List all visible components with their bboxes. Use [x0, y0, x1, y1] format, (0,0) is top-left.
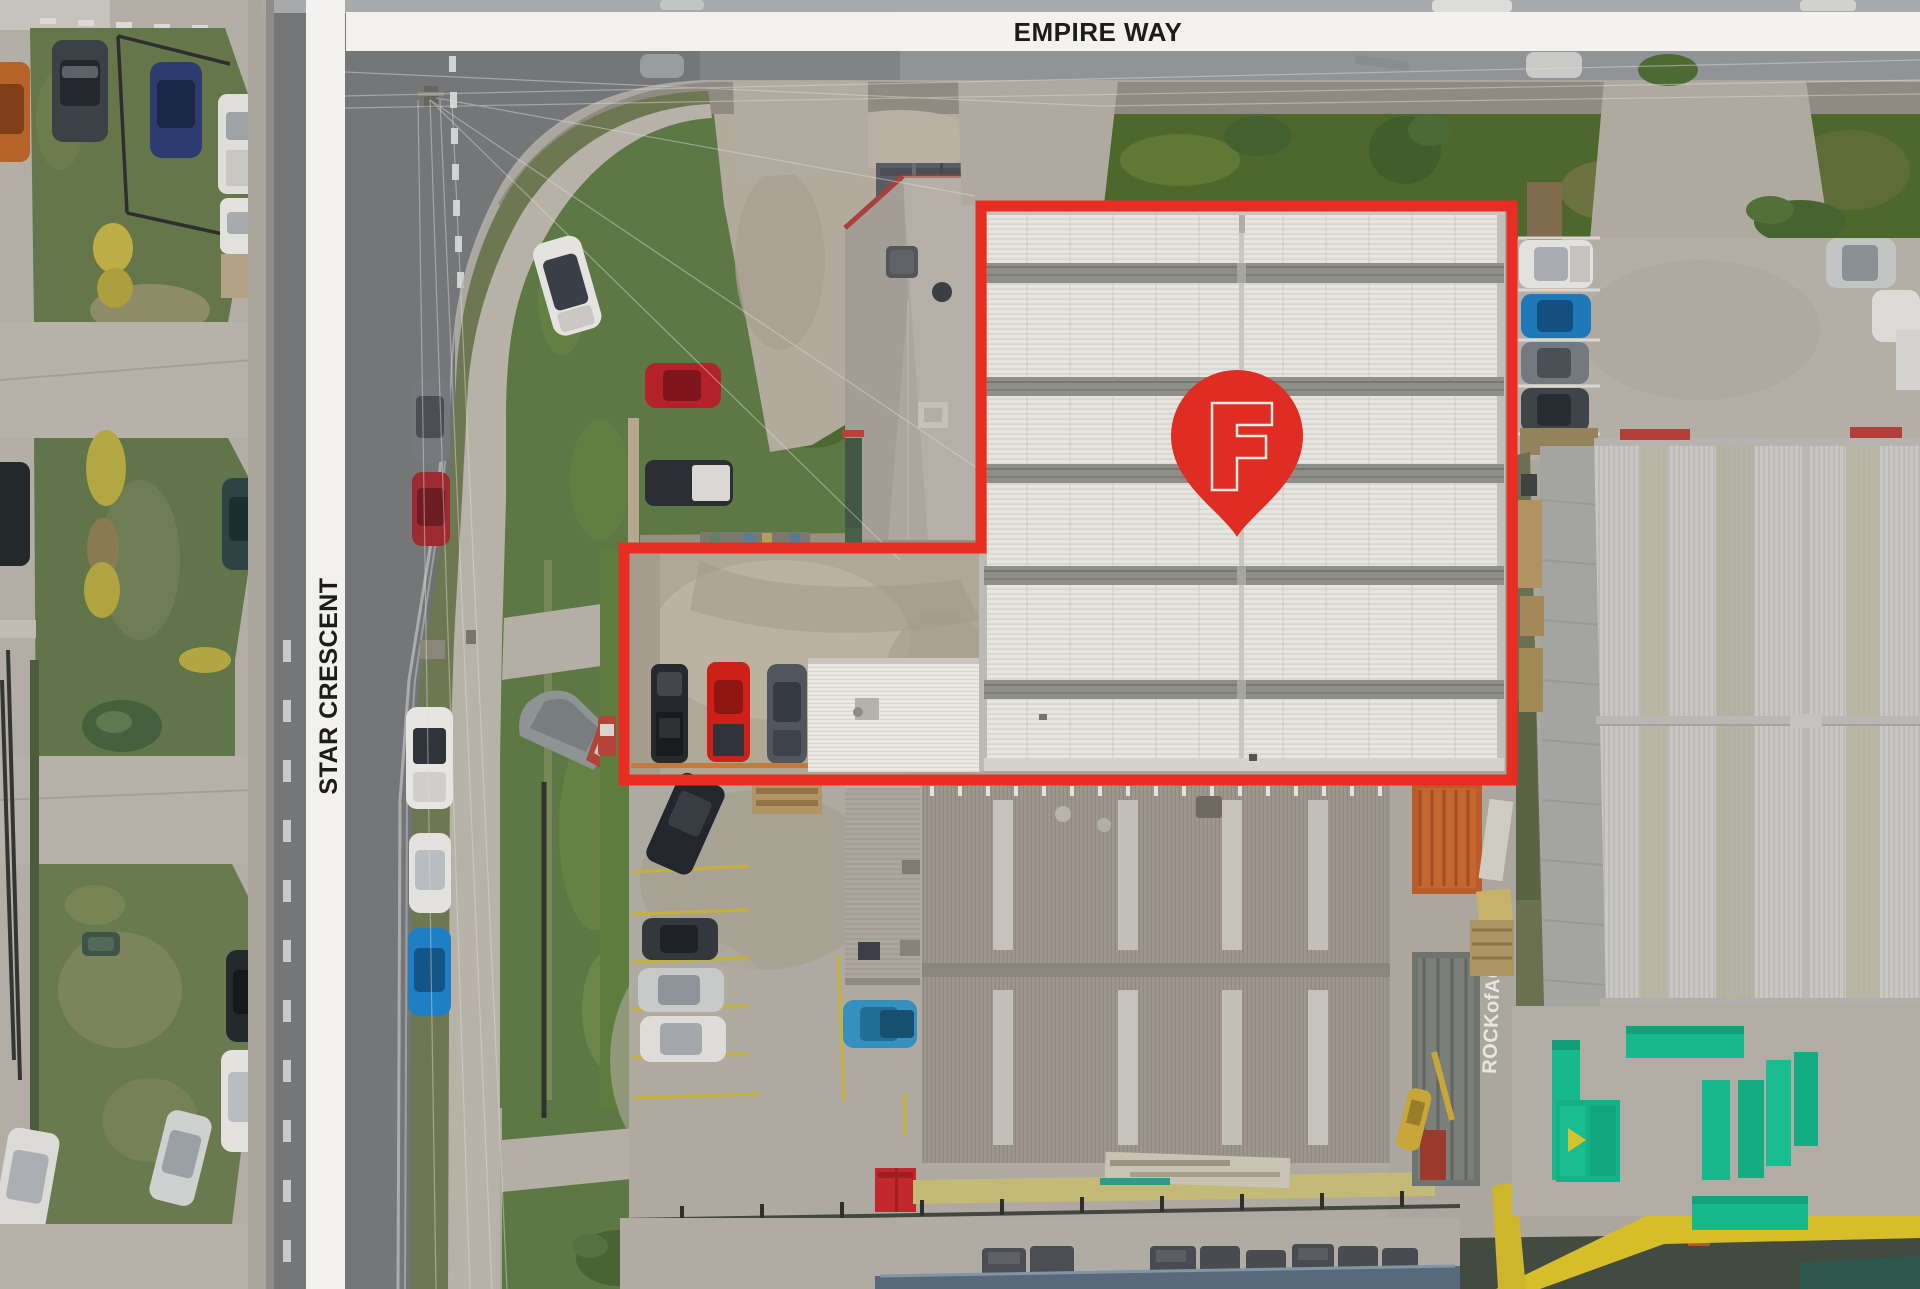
svg-text:STAR CRESCENT: STAR CRESCENT — [315, 577, 343, 794]
svg-text:EMPIRE WAY: EMPIRE WAY — [1014, 17, 1183, 47]
